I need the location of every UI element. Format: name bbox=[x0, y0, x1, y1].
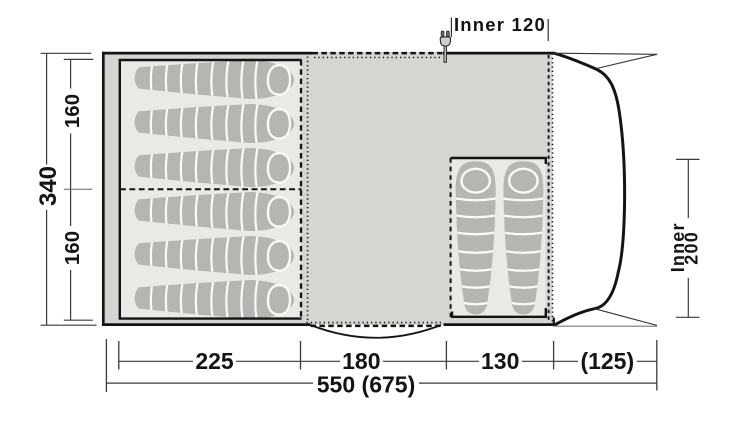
svg-text:160: 160 bbox=[61, 94, 84, 128]
svg-text:180: 180 bbox=[342, 348, 380, 374]
svg-text:225: 225 bbox=[195, 348, 234, 374]
svg-text:Inner 120: Inner 120 bbox=[454, 14, 546, 35]
svg-text:200: 200 bbox=[682, 231, 702, 265]
svg-text:130: 130 bbox=[481, 348, 519, 374]
svg-text:160: 160 bbox=[61, 231, 84, 265]
svg-text:550 (675): 550 (675) bbox=[317, 372, 415, 398]
svg-text:340: 340 bbox=[35, 166, 62, 206]
svg-text:(125): (125) bbox=[580, 348, 634, 374]
